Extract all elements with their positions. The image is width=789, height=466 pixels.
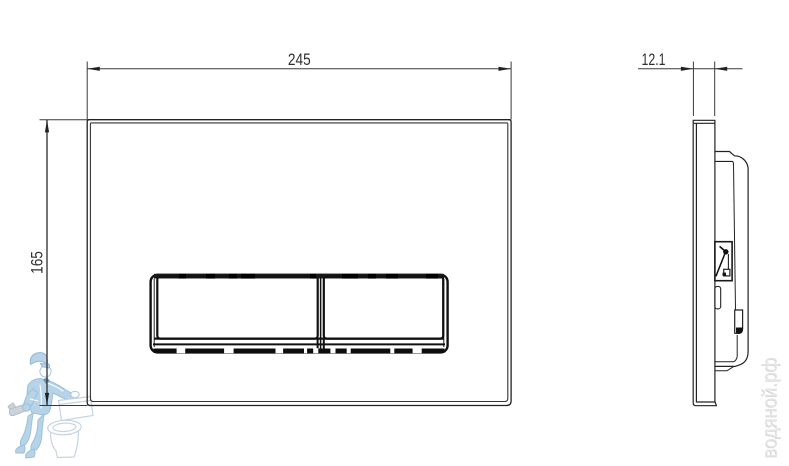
svg-text:165: 165 [27, 251, 46, 274]
svg-text:водяной.рф: водяной.рф [759, 357, 782, 458]
svg-text:12.1: 12.1 [642, 50, 666, 69]
svg-text:245: 245 [288, 50, 311, 69]
